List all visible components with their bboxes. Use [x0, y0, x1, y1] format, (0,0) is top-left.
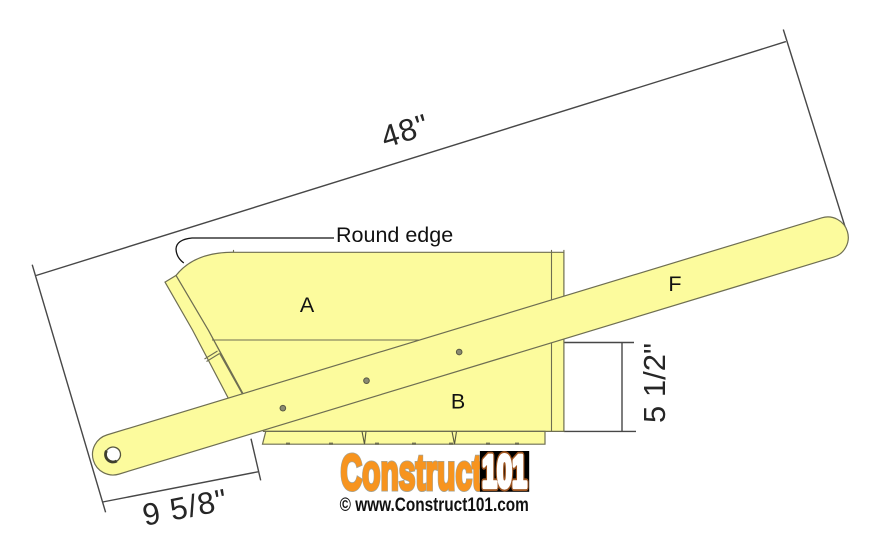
svg-text:Round edge: Round edge — [336, 223, 453, 247]
svg-text:101: 101 — [482, 446, 527, 497]
svg-text:A: A — [300, 293, 315, 317]
svg-text:© www.Construct101.com: © www.Construct101.com — [340, 493, 529, 515]
svg-text:B: B — [451, 390, 465, 414]
svg-text:F: F — [668, 272, 681, 296]
svg-text:5 1/2": 5 1/2" — [637, 343, 672, 423]
svg-text:Construct: Construct — [341, 445, 483, 501]
